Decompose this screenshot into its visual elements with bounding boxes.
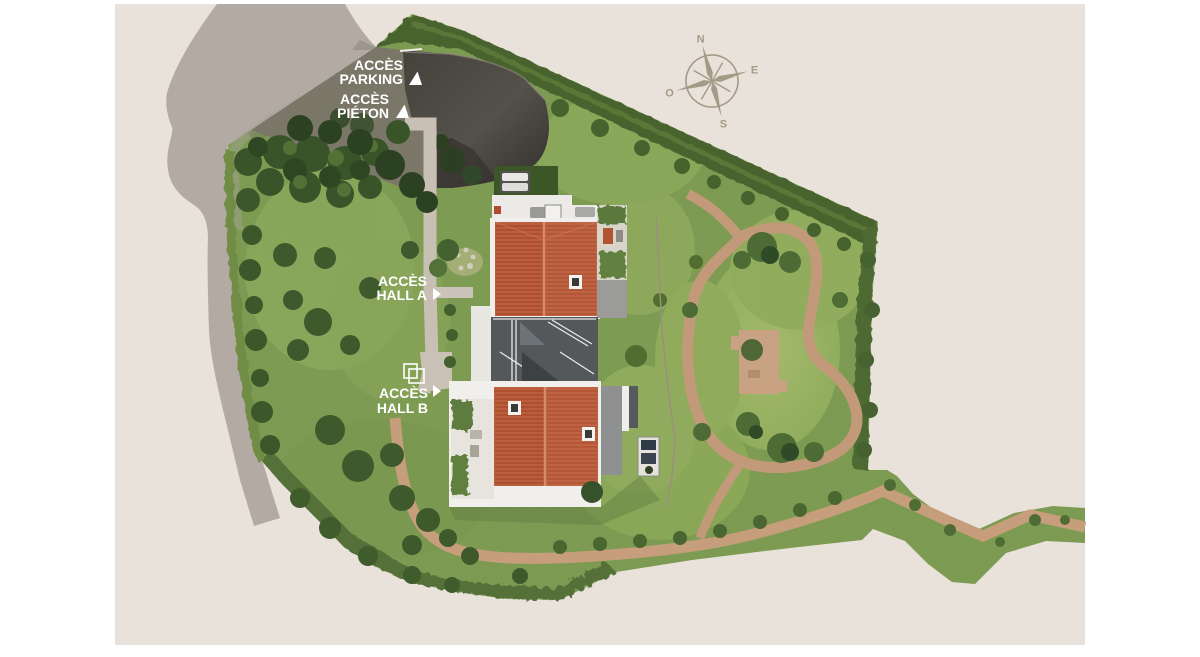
- svg-text:N: N: [697, 33, 705, 45]
- svg-text:PARKING: PARKING: [339, 71, 403, 87]
- svg-text:HALL B: HALL B: [377, 400, 428, 416]
- svg-text:E: E: [751, 65, 758, 77]
- svg-text:O: O: [665, 87, 674, 99]
- svg-text:S: S: [720, 119, 727, 131]
- svg-text:ACCÈS: ACCÈS: [379, 385, 428, 401]
- svg-text:PIÉTON: PIÉTON: [337, 105, 389, 121]
- svg-text:HALL A: HALL A: [376, 287, 427, 303]
